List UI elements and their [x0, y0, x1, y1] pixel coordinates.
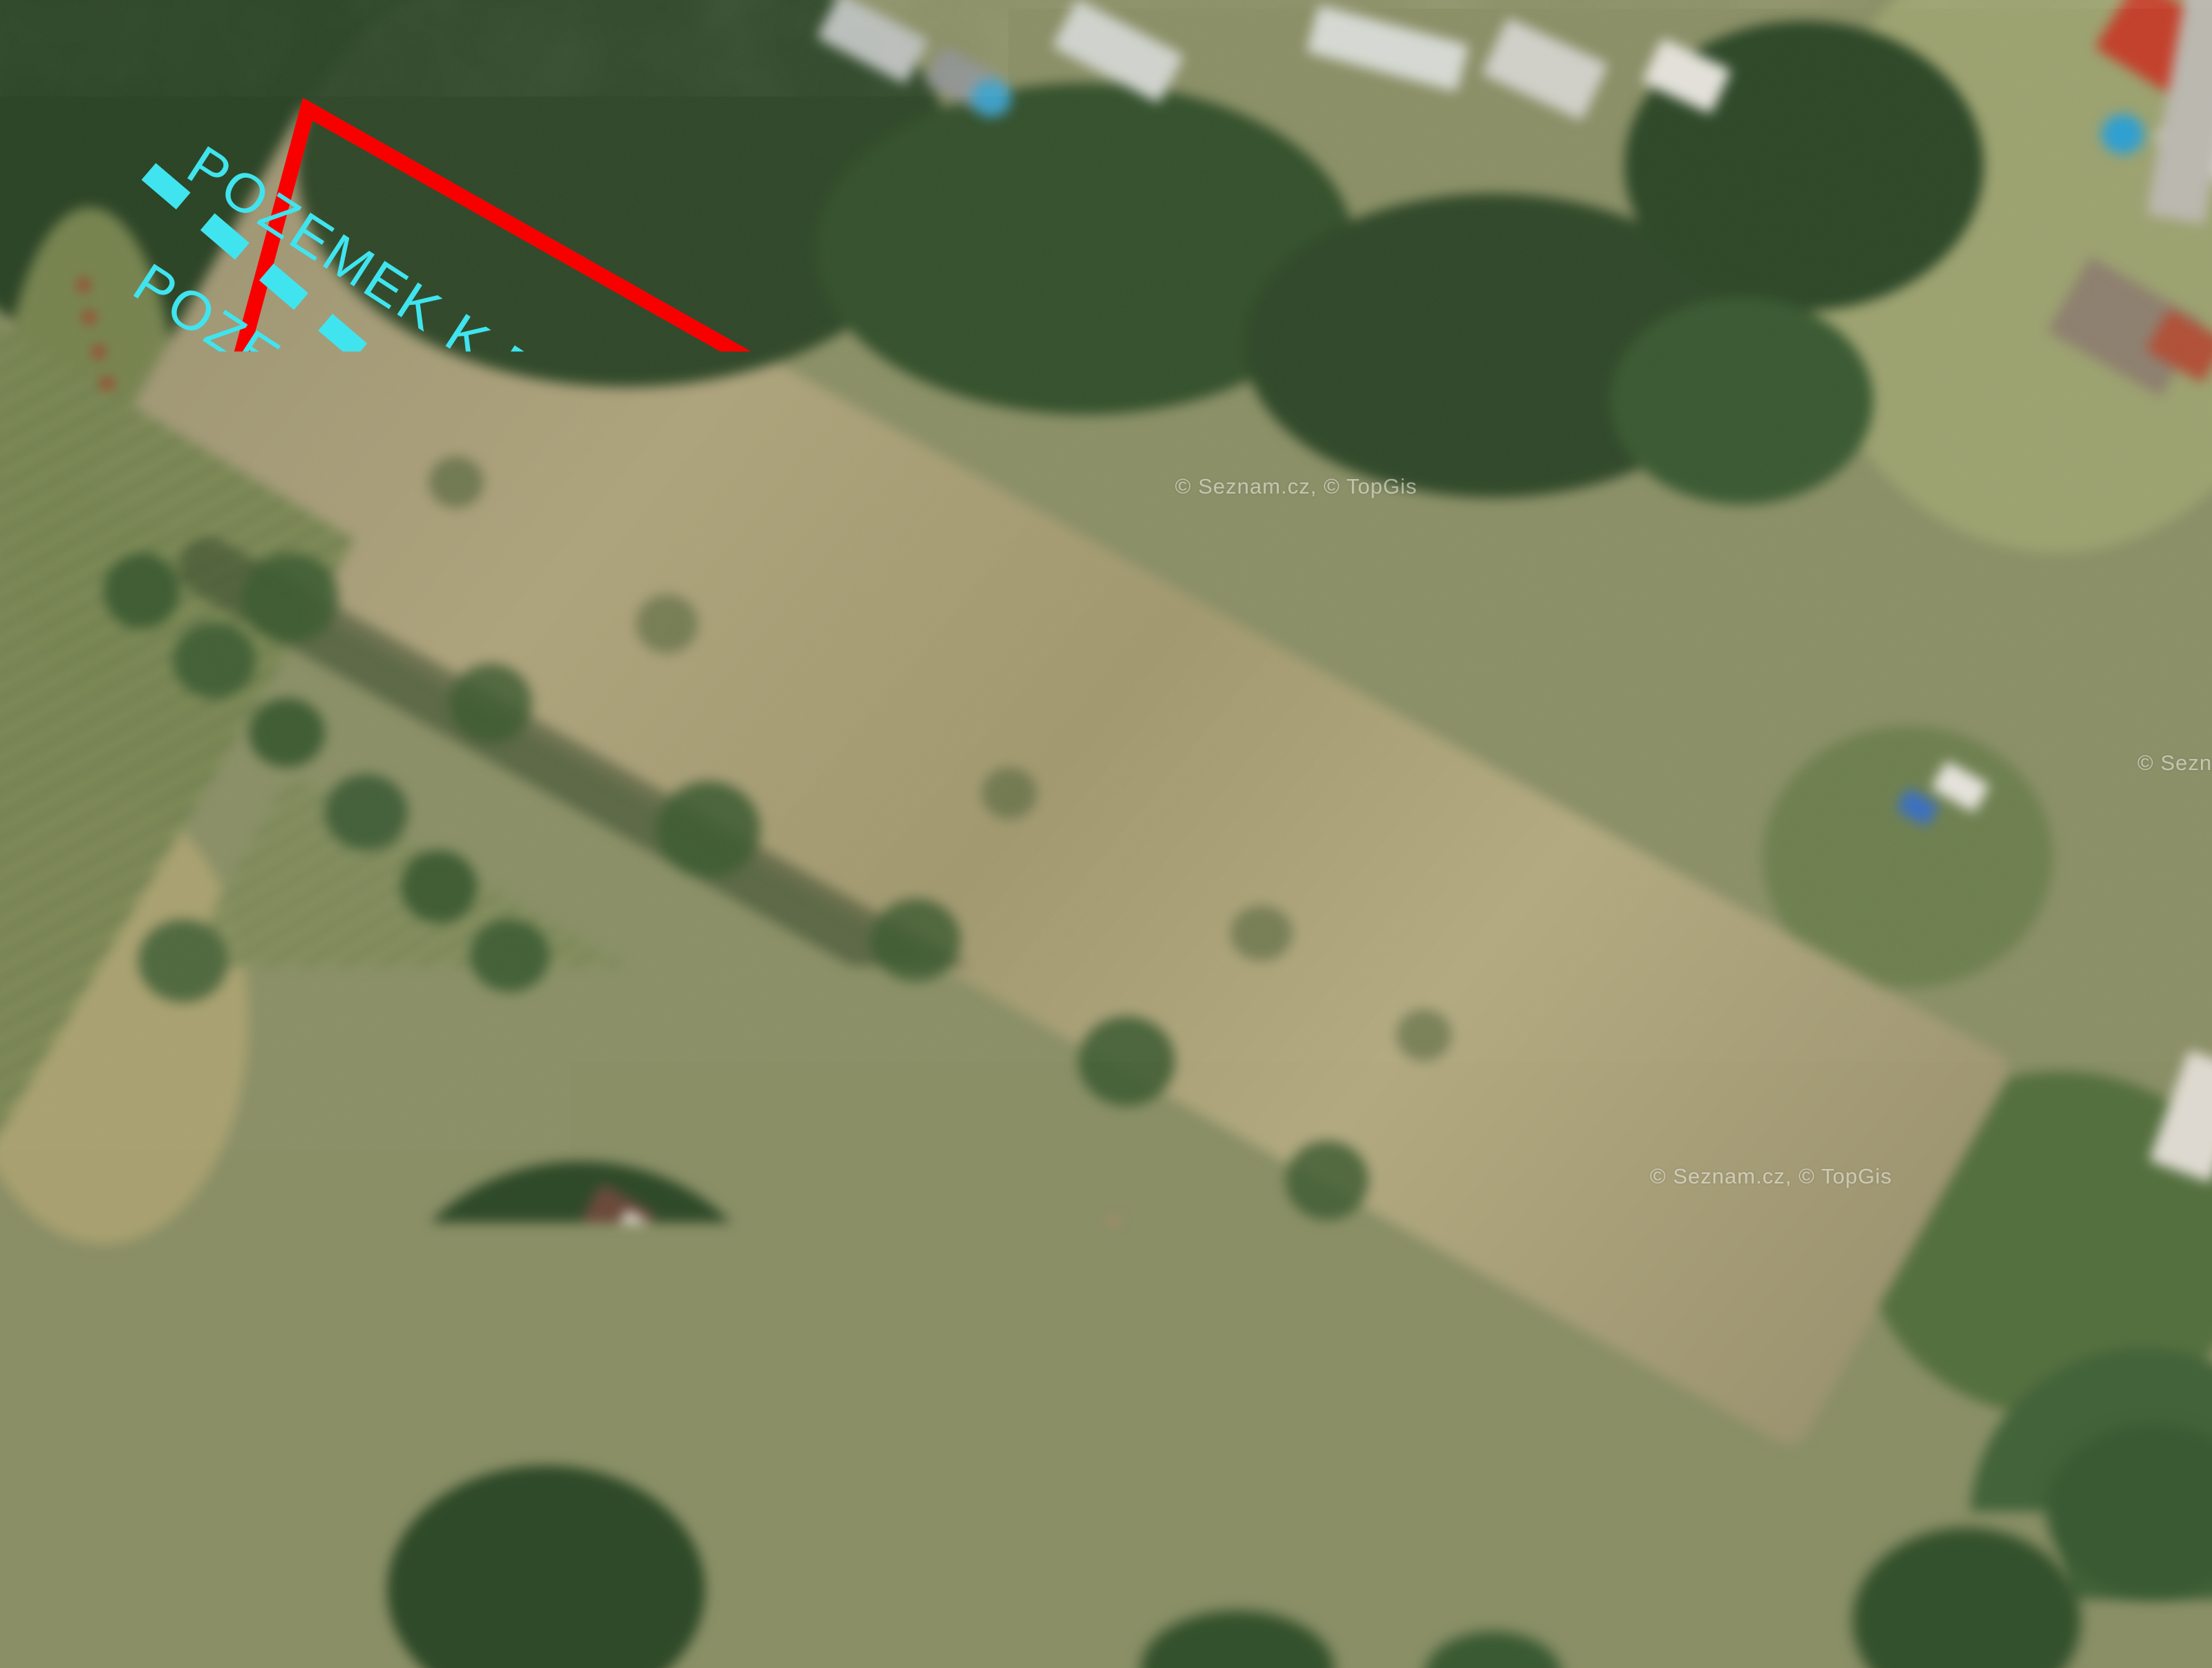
photo-grain	[0, 0, 2212, 1668]
aerial-map: © Seznam.cz, © TopGis © Seznam.cz, © Top…	[0, 0, 2212, 1668]
